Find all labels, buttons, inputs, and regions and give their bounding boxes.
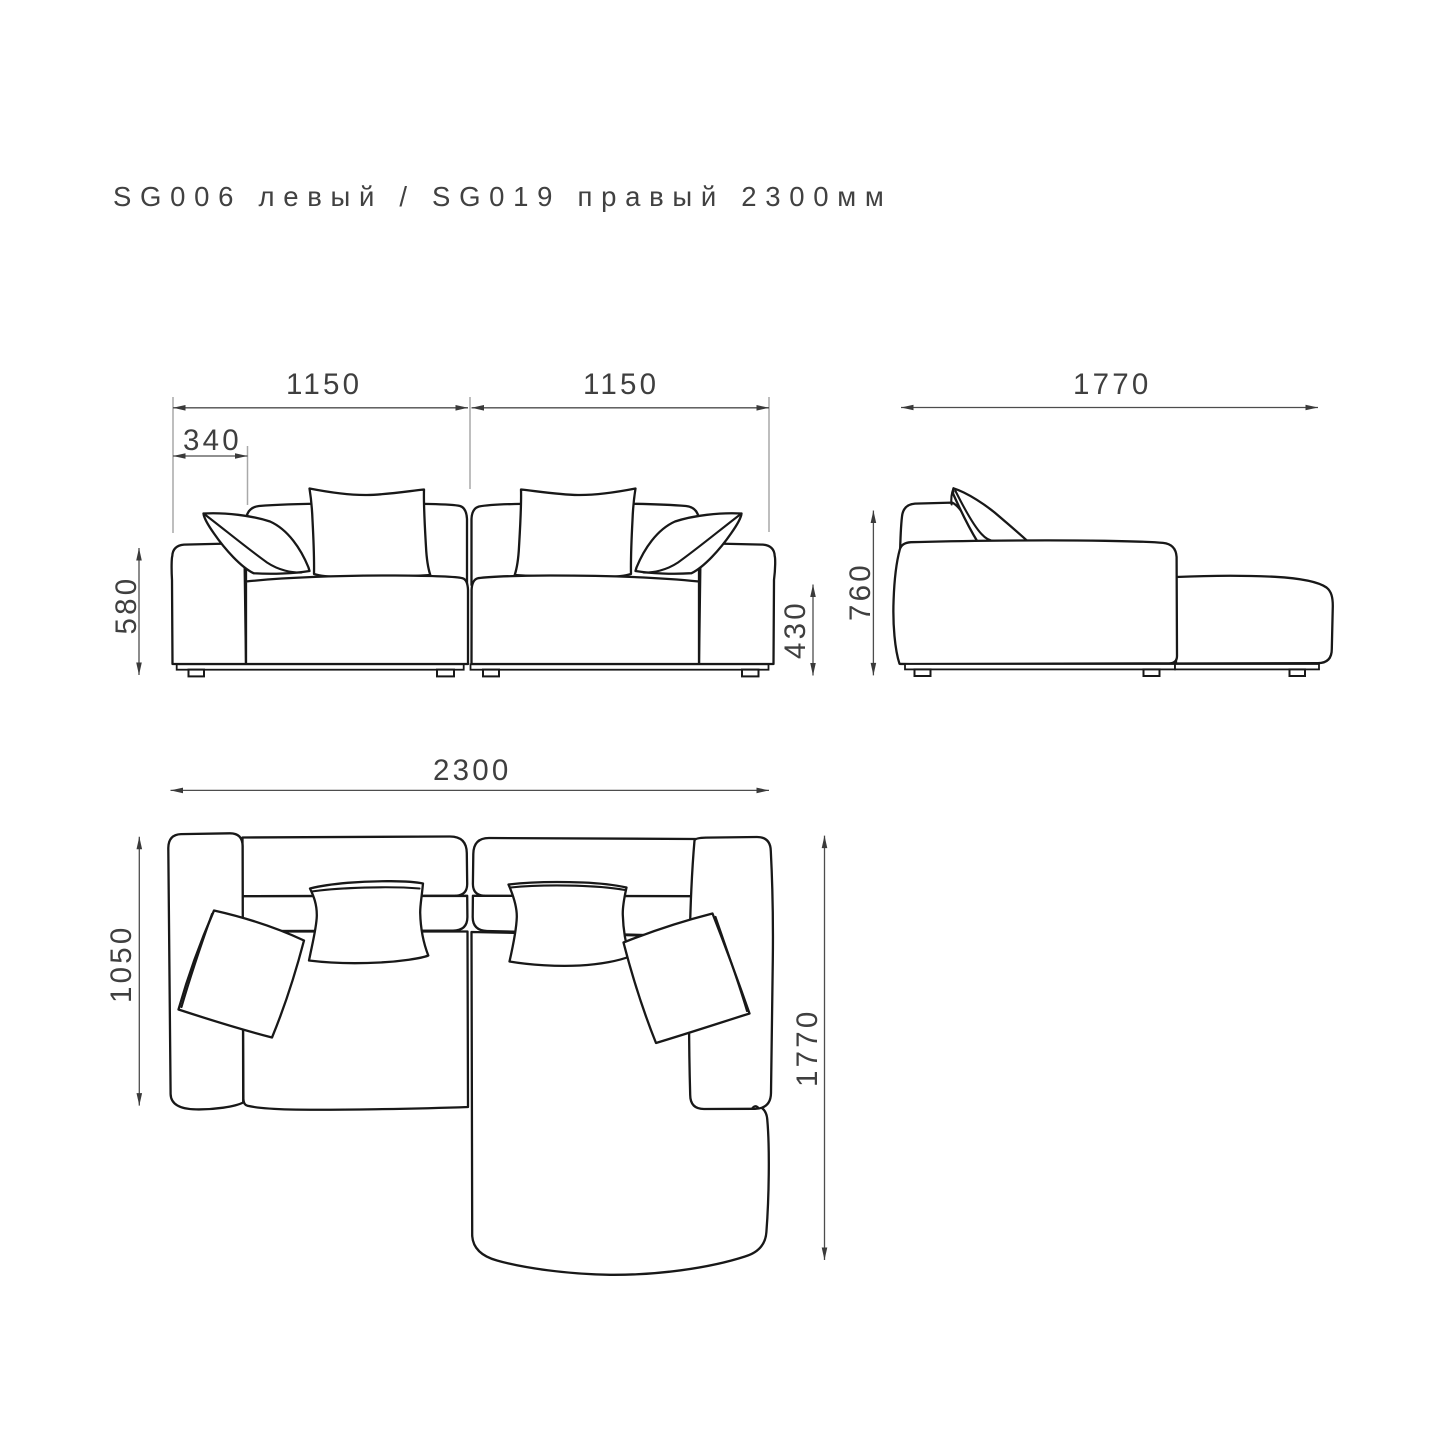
svg-text:760: 760 (844, 562, 877, 621)
svg-text:1770: 1770 (1073, 368, 1151, 401)
svg-text:1770: 1770 (791, 1009, 824, 1087)
svg-text:430: 430 (779, 600, 812, 659)
svg-text:1050: 1050 (105, 925, 138, 1003)
svg-text:1150: 1150 (286, 368, 362, 401)
svg-text:2300: 2300 (433, 754, 511, 787)
svg-text:SG006 левый / SG019 правый 230: SG006 левый / SG019 правый 2300мм (113, 181, 892, 212)
svg-text:1150: 1150 (583, 368, 659, 401)
svg-text:340: 340 (183, 424, 242, 457)
svg-text:580: 580 (110, 576, 143, 635)
